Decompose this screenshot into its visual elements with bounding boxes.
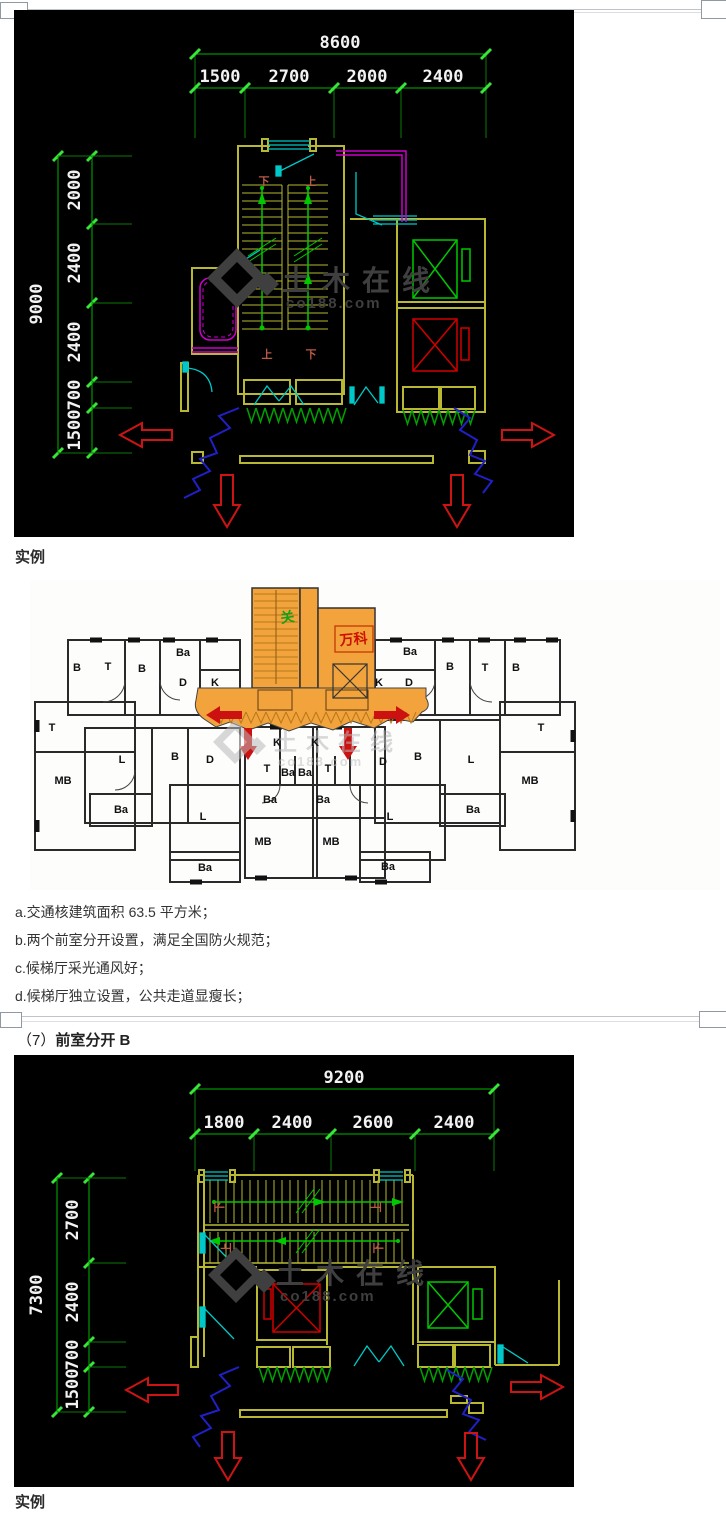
elevator-green	[428, 1282, 482, 1328]
page-margin-box	[0, 1012, 22, 1028]
dim-segment: 700	[65, 380, 85, 411]
dim-segment: 2400	[65, 322, 85, 363]
document-page: { "page": { "example_label_top": "实例", "…	[0, 0, 726, 1521]
cad-a-svg: 8600 1500 2700 2000 2400 9000 2000 2400 …	[14, 10, 574, 537]
stair-direction-label: 下	[259, 175, 270, 188]
room-label: D	[405, 677, 413, 689]
dim-segment: 2400	[272, 1113, 313, 1133]
cad-drawing-a: 8600 1500 2700 2000 2400 9000 2000 2400 …	[14, 10, 574, 537]
dim-segment: 1500	[63, 1369, 83, 1410]
dim-segment: 2400	[434, 1113, 475, 1133]
room-label: L	[200, 811, 207, 823]
dim-segment: 1800	[204, 1113, 245, 1133]
room-label: MB	[521, 775, 538, 787]
dim-segment: 1500	[200, 67, 241, 87]
room-label: T	[49, 722, 56, 734]
stair-direction-label: 下	[372, 1243, 385, 1254]
elevator-red	[413, 319, 469, 371]
arrow-down-icon	[444, 475, 470, 527]
room-label: Ba	[381, 861, 395, 873]
dim-segment: 2400	[63, 1282, 83, 1323]
stair-direction-label: 下	[306, 348, 317, 361]
room-label: MB	[254, 836, 271, 848]
arrow-left-icon	[120, 423, 172, 447]
room-label: B	[171, 751, 179, 763]
room-label: T	[325, 763, 332, 775]
note-line: a.交通核建筑面积 63.5 平方米；	[15, 903, 279, 921]
section-heading: （7）前室分开 B	[17, 1029, 130, 1050]
dim-segment: 2000	[65, 170, 85, 211]
heading-title: 前室分开 B	[55, 1032, 130, 1049]
room-label: L	[119, 754, 126, 766]
room-label: B	[512, 662, 520, 674]
room-label: MB	[54, 775, 71, 787]
flow-arrows	[126, 1375, 563, 1480]
room-label: T	[538, 722, 545, 734]
arrow-down-icon	[215, 1432, 241, 1480]
core-label-vanke: 万科	[338, 630, 368, 648]
room-label: D	[379, 756, 387, 768]
arrow-down-icon	[458, 1433, 484, 1480]
bath-and-magenta-wall	[192, 151, 406, 352]
room-label: T	[264, 763, 271, 775]
dim-segment: 2400	[423, 67, 464, 87]
room-label: Ba	[281, 767, 295, 779]
room-label: Ba	[176, 647, 190, 659]
dim-segment: 2700	[269, 67, 310, 87]
room-label: L	[468, 754, 475, 766]
room-label: D	[179, 677, 187, 689]
entrance-hatch	[259, 1367, 492, 1381]
watermark-text-cn: 土木在线	[276, 1258, 436, 1289]
break-lines	[184, 408, 492, 498]
room-label: K	[273, 737, 281, 749]
stair-direction-label: 上	[306, 174, 317, 188]
room-label: K	[311, 737, 319, 749]
room-label: Ba	[114, 804, 128, 816]
page-break-line	[0, 1016, 726, 1017]
room-label: T	[482, 662, 489, 674]
arrow-left-icon	[126, 1378, 178, 1402]
example-label: 实例	[15, 546, 45, 567]
stair-direction-label: 上	[262, 347, 273, 361]
stair-direction-label: 上	[369, 1202, 383, 1213]
room-label: K	[211, 677, 219, 689]
dim-total-width: 8600	[320, 33, 361, 53]
dim-segment: 1500	[65, 410, 85, 451]
note-line: c.候梯厅采光通风好；	[15, 959, 279, 977]
dim-total-height: 7300	[27, 1275, 47, 1316]
note-line: b.两个前室分开设置，满足全国防火规范；	[15, 931, 279, 949]
room-label: B	[138, 663, 146, 675]
room-label: D	[206, 754, 214, 766]
room-label: B	[446, 661, 454, 673]
watermark-text-en: co188.com	[286, 295, 382, 312]
dimension-ticks	[53, 49, 491, 458]
dim-segment: 2400	[65, 243, 85, 284]
page-margin-box	[701, 0, 726, 19]
watermark-text-en: co188.com	[280, 1288, 376, 1305]
arrow-down-icon	[214, 475, 240, 527]
floor-plan-svg: 关 万科 土木在线 co188.com	[30, 580, 720, 890]
flow-arrows	[120, 423, 554, 527]
room-label: K	[375, 677, 383, 689]
heading-number: （7）	[17, 1032, 55, 1049]
cad-drawing-b: 9200 1800 2400 2600 2400 7300 2700 2400 …	[14, 1055, 574, 1487]
dim-segment: 2600	[353, 1113, 394, 1133]
cad-b-svg: 9200 1800 2400 2600 2400 7300 2700 2400 …	[14, 1055, 574, 1487]
notes-block: a.交通核建筑面积 63.5 平方米； b.两个前室分开设置，满足全国防火规范；…	[15, 903, 279, 1015]
dim-segment: 2700	[63, 1200, 83, 1241]
arrow-right-icon	[502, 423, 554, 447]
room-label: Ba	[316, 794, 330, 806]
page-margin-box	[699, 1011, 726, 1028]
room-label: T	[105, 661, 112, 673]
highlighted-core: 关 万科	[195, 588, 428, 731]
arrow-right-icon	[511, 1375, 563, 1399]
dim-total-width: 9200	[324, 1068, 365, 1088]
page-break-line	[0, 1021, 726, 1022]
watermark-text-cn: 土木在线	[282, 265, 442, 296]
example-label: 实例	[15, 1491, 45, 1512]
entrance-hatch	[247, 408, 475, 424]
dim-total-height: 9000	[27, 284, 47, 325]
room-label: B	[73, 662, 81, 674]
dim-segment: 700	[63, 1340, 83, 1371]
room-label: L	[387, 811, 394, 823]
room-label: Ba	[198, 862, 212, 874]
room-label: Ba	[403, 646, 417, 658]
room-label: Ba	[466, 804, 480, 816]
room-label: B	[414, 751, 422, 763]
watermark-text-cn: 土木在线	[274, 729, 402, 755]
room-label: MB	[322, 836, 339, 848]
room-label: Ba	[263, 794, 277, 806]
dim-segment: 2000	[347, 67, 388, 87]
note-line: d.候梯厅独立设置，公共走道显瘦长；	[15, 987, 279, 1005]
stair-direction-label: 下	[213, 1202, 226, 1213]
floor-plan-image: 关 万科 土木在线 co188.com BTBBaDKTMBLBDBaLBaKK…	[30, 580, 720, 890]
core-label-green: 关	[279, 608, 295, 626]
room-label: Ba	[298, 767, 312, 779]
